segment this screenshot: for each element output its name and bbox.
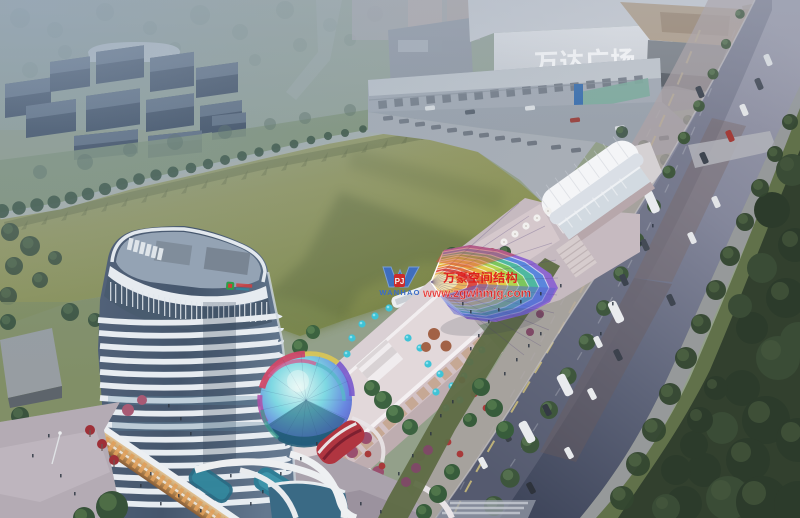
svg-text:www.zgwhmjg.com: www.zgwhmjg.com	[422, 286, 531, 300]
svg-text:WANHAO: WANHAO	[379, 288, 420, 297]
svg-text:PJ: PJ	[395, 277, 405, 286]
